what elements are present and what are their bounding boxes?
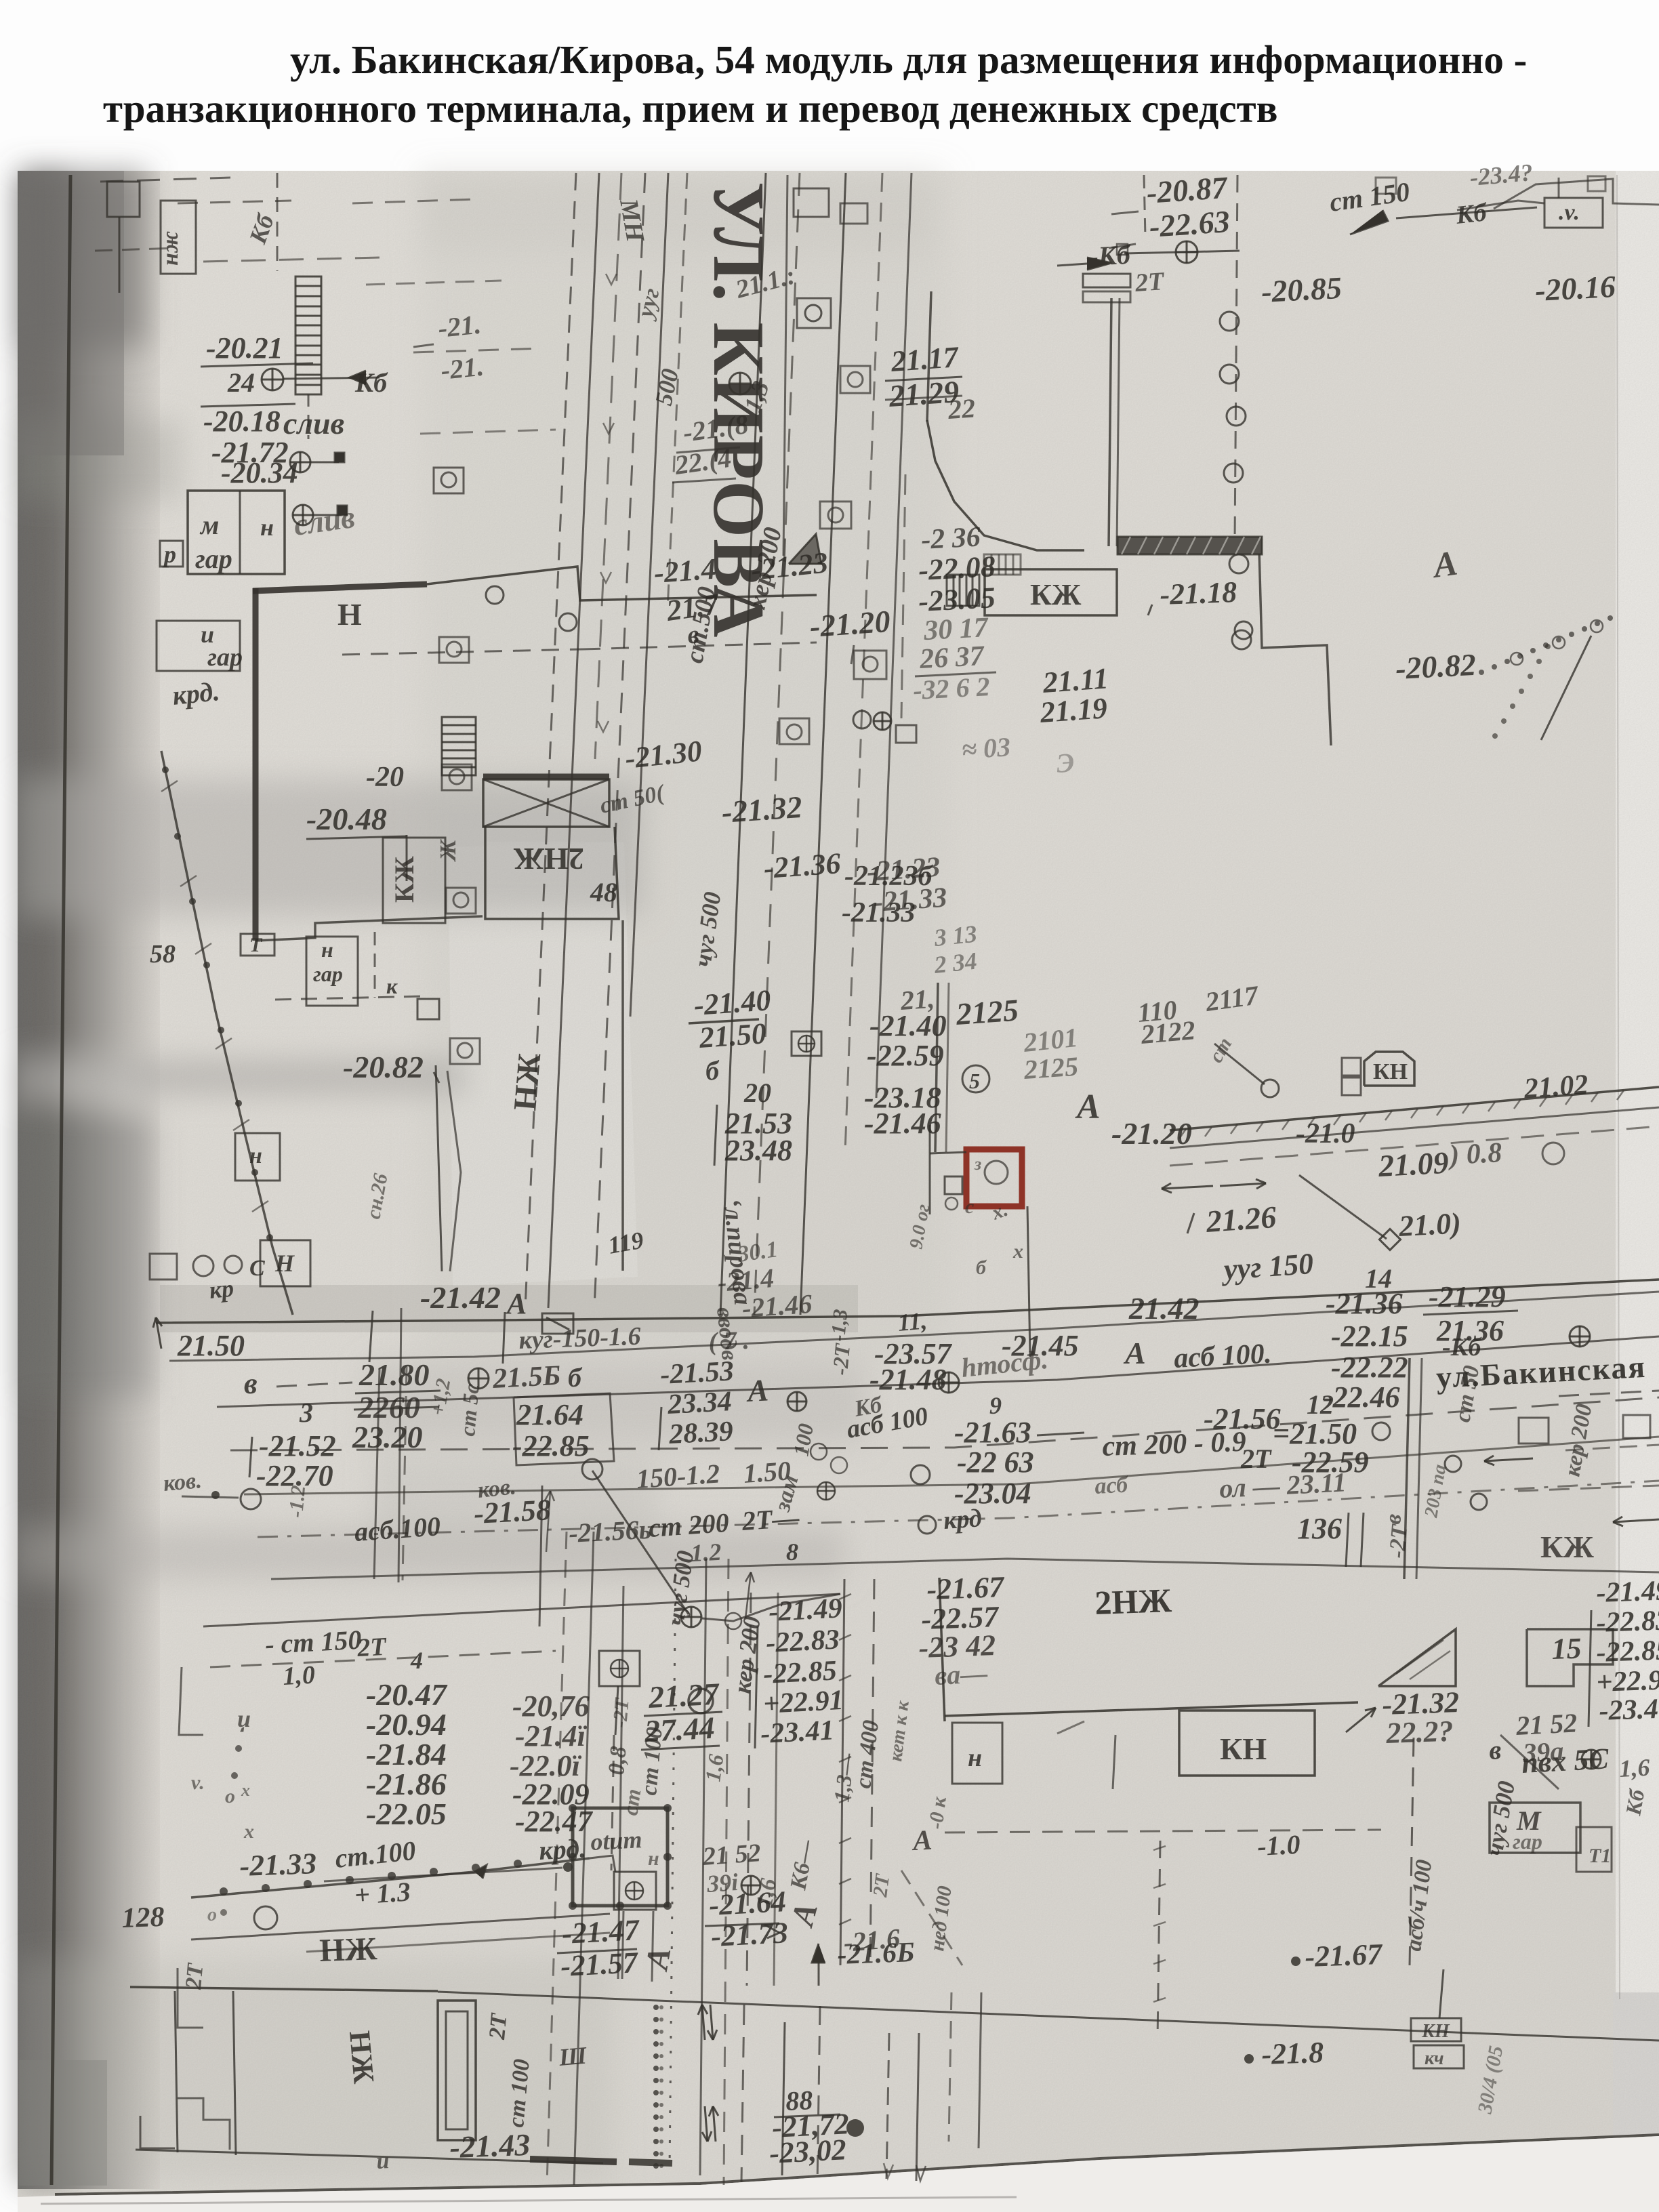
- svg-text:-21.53: -21.53: [659, 1355, 735, 1391]
- svg-text:Ж: Ж: [436, 838, 461, 862]
- svg-text:v.: v.: [191, 1771, 205, 1794]
- svg-text:8: 8: [786, 1538, 798, 1565]
- svg-text:-22.83: -22.83: [1596, 1605, 1659, 1639]
- svg-text:-0 к: -0 к: [924, 1795, 951, 1830]
- svg-text:21.50: 21.50: [177, 1329, 245, 1362]
- svg-text:21.50: 21.50: [697, 1017, 767, 1054]
- svg-text:в: в: [244, 1367, 258, 1400]
- svg-text:А: А: [745, 1372, 769, 1408]
- svg-text:-20.82: -20.82: [1395, 647, 1477, 686]
- svg-text:Н: Н: [274, 1250, 295, 1277]
- svg-text:н: н: [249, 1143, 262, 1168]
- svg-text:б: б: [976, 1256, 987, 1279]
- svg-text:2Т: 2Т: [1134, 267, 1166, 298]
- svg-text:о: о: [207, 1904, 217, 1925]
- svg-text:1,6: 1,6: [1618, 1754, 1650, 1782]
- svg-text:-21.0: -21.0: [1296, 1118, 1355, 1149]
- svg-text:кр: кр: [208, 1274, 235, 1304]
- svg-text:-20.18: -20.18: [203, 405, 281, 438]
- svg-text:15: 15: [1551, 1631, 1582, 1666]
- svg-text:крд.: крд.: [171, 676, 221, 711]
- svg-text:в: в: [1380, 1513, 1406, 1525]
- svg-text:ков.: ков.: [162, 1468, 203, 1496]
- svg-text:н: н: [321, 937, 333, 962]
- svg-text:н: н: [968, 1744, 982, 1772]
- svg-text:- ст 150: - ст 150: [264, 1624, 362, 1660]
- svg-text:асб 100.: асб 100.: [1173, 1338, 1272, 1374]
- svg-text:Э: Э: [1055, 747, 1075, 779]
- svg-text:22: 22: [946, 392, 976, 425]
- svg-text:-21.33: -21.33: [239, 1847, 317, 1883]
- svg-text:слив: слив: [283, 406, 344, 441]
- svg-text:-21.52: -21.52: [259, 1429, 336, 1462]
- svg-text:2Т: 2Т: [869, 1872, 894, 1899]
- svg-text:-21.49: -21.49: [1596, 1575, 1659, 1609]
- svg-text:-21.57: -21.57: [560, 1946, 640, 1983]
- svg-text:2 34: 2 34: [933, 947, 979, 979]
- svg-text:2125: 2125: [954, 993, 1019, 1031]
- svg-text:2125: 2125: [1022, 1051, 1079, 1086]
- svg-text:НЖ: НЖ: [319, 1931, 378, 1969]
- svg-text:39а: 39а: [1521, 1736, 1564, 1768]
- svg-text:21.17: 21.17: [889, 340, 960, 378]
- svg-text:о: о: [225, 1785, 235, 1807]
- svg-text:р: р: [162, 541, 176, 568]
- svg-text:КЖ: КЖ: [389, 856, 419, 903]
- svg-text:и: и: [375, 2148, 390, 2174]
- svg-text:А: А: [910, 1825, 933, 1858]
- svg-text:н: н: [648, 1847, 659, 1870]
- svg-text:22.2?: 22.2?: [1385, 1715, 1454, 1750]
- svg-text:-21.33: -21.33: [872, 882, 947, 918]
- svg-text:21.09: 21.09: [1377, 1145, 1450, 1183]
- svg-text:0,8: 0,8: [604, 1745, 632, 1776]
- svg-text:1,6: 1,6: [700, 1753, 728, 1783]
- svg-text:-20,76: -20,76: [512, 1689, 590, 1723]
- svg-text:5: 5: [969, 1069, 980, 1093]
- svg-text:ууг 150: ууг 150: [1219, 1247, 1314, 1286]
- svg-text:х: х: [1012, 1240, 1023, 1263]
- svg-text:1,0: 1,0: [282, 1661, 316, 1691]
- svg-text:х: х: [243, 1820, 254, 1843]
- svg-text:23.34: 23.34: [666, 1386, 733, 1420]
- svg-text:-22.46: -22.46: [1323, 1380, 1400, 1414]
- svg-text:С: С: [249, 1256, 265, 1281]
- svg-text:21.0): 21.0): [1397, 1206, 1462, 1243]
- svg-text:-21.43: -21.43: [449, 2127, 531, 2165]
- svg-text:2Т: 2Т: [356, 1633, 388, 1662]
- svg-text:21 52: 21 52: [701, 1839, 762, 1871]
- svg-text:-21.: -21.: [436, 309, 483, 344]
- svg-text:Т: Т: [249, 934, 263, 956]
- svg-text:23.48: 23.48: [724, 1134, 792, 1167]
- svg-text:-Кб: -Кб: [1442, 1333, 1482, 1361]
- svg-text:+ 1.3: + 1.3: [353, 1876, 411, 1910]
- svg-text:-22.15: -22.15: [1331, 1319, 1408, 1353]
- svg-text:-21.4ї: -21.4ї: [515, 1719, 588, 1753]
- svg-text:-21.6: -21.6: [842, 1923, 901, 1958]
- svg-text:-2Т: -2Т: [1385, 1523, 1412, 1559]
- svg-text:20: 20: [743, 1078, 771, 1108]
- svg-text:гар: гар: [207, 643, 243, 672]
- svg-text:кч: кч: [1425, 2048, 1444, 2069]
- svg-text:асб: асб: [1094, 1472, 1130, 1499]
- svg-text:2Т: 2Т: [485, 2012, 512, 2041]
- svg-text:26 37: 26 37: [918, 640, 986, 675]
- svg-text:58: 58: [150, 940, 176, 968]
- svg-text:1,6: 1,6: [752, 1877, 781, 1909]
- svg-text:-2Т: -2Т: [827, 1342, 855, 1376]
- svg-text:-21.42: -21.42: [420, 1280, 501, 1315]
- svg-text:128: 128: [121, 1902, 165, 1934]
- svg-text:-22.59: -22.59: [867, 1039, 944, 1072]
- svg-text:≈ 03: ≈ 03: [960, 731, 1011, 765]
- svg-text:-23.41: -23.41: [760, 1715, 835, 1750]
- svg-text:гар: гар: [195, 544, 232, 574]
- svg-text:24: 24: [227, 367, 255, 398]
- svg-text:-20.16: -20.16: [1534, 269, 1616, 308]
- svg-text:39і: 39і: [705, 1868, 739, 1898]
- svg-text:куг-150-1.6: куг-150-1.6: [518, 1322, 641, 1355]
- svg-text:-21.: -21.: [439, 351, 485, 386]
- svg-text:-21.20: -21.20: [1111, 1116, 1192, 1151]
- svg-text:9: 9: [989, 1392, 1002, 1419]
- svg-text:нж: нж: [158, 231, 183, 266]
- svg-text:џ: џ: [237, 1705, 251, 1732]
- svg-text:-22.05: -22.05: [366, 1797, 447, 1831]
- svg-text:КН: КН: [1373, 1059, 1408, 1084]
- svg-text:48: 48: [590, 877, 617, 907]
- svg-text:-21.48: -21.48: [869, 1363, 947, 1396]
- svg-text:-21.32: -21.32: [720, 790, 803, 829]
- svg-text:асб.100: асб.100: [353, 1511, 441, 1547]
- svg-text:-20.21: -20.21: [206, 331, 283, 365]
- svg-text:12: 12: [1307, 1389, 1334, 1420]
- svg-text:-1.0: -1.0: [1256, 1829, 1301, 1862]
- svg-text:Т1: Т1: [1589, 1845, 1611, 1867]
- svg-text:-22.22: -22.22: [1331, 1351, 1408, 1384]
- svg-text:-21.58: -21.58: [473, 1493, 552, 1530]
- svg-text:-22.63: -22.63: [1148, 204, 1231, 244]
- svg-text:21.42: 21.42: [1128, 1291, 1200, 1326]
- svg-text:НЖ: НЖ: [507, 1051, 548, 1112]
- svg-text:ст: ст: [617, 1787, 645, 1817]
- svg-text:) 0.8: ) 0.8: [1446, 1137, 1502, 1171]
- svg-text:А: А: [505, 1287, 527, 1320]
- svg-text:-21.4: -21.4: [653, 552, 717, 590]
- svg-text:-23.41: -23.41: [1599, 1693, 1659, 1727]
- svg-text:Н: Н: [337, 597, 362, 632]
- svg-text:-21.67: -21.67: [1305, 1938, 1384, 1973]
- svg-text:ст 200 - 0.9: ст 200 - 0.9: [1102, 1427, 1247, 1462]
- svg-text:-21.36: -21.36: [1326, 1287, 1403, 1320]
- svg-text:-23.4?: -23.4?: [1469, 159, 1534, 191]
- svg-text:гар: гар: [313, 962, 343, 986]
- svg-text:-21.56ь: -21.56ь: [568, 1514, 652, 1549]
- svg-text:-21.36: -21.36: [762, 846, 842, 885]
- svg-text:Ш: Ш: [557, 2041, 588, 2071]
- svg-text:х: х: [241, 1780, 250, 1800]
- svg-text:-21.23: -21.23: [865, 852, 941, 888]
- svg-text:крд: крд: [943, 1504, 983, 1535]
- svg-text:ст 5с: ст 5с: [455, 1382, 484, 1437]
- svg-text:-32 6 2: -32 6 2: [912, 671, 991, 705]
- svg-text:21.02: 21.02: [1522, 1069, 1589, 1105]
- svg-text:2Т: 2Т: [1240, 1443, 1272, 1474]
- svg-text:-21.40: -21.40: [869, 1009, 947, 1042]
- svg-text:2Т—: 2Т—: [740, 1502, 800, 1536]
- svg-text:-21.40: -21.40: [693, 983, 772, 1022]
- svg-text:150-1.2: 150-1.2: [635, 1458, 720, 1494]
- svg-text:-21.20: -21.20: [808, 604, 891, 644]
- svg-text:м: м: [199, 510, 219, 540]
- svg-text:-20.48: -20.48: [306, 802, 387, 836]
- svg-text:-23,02: -23,02: [769, 2133, 847, 2170]
- svg-text:-20: -20: [366, 762, 404, 793]
- svg-text:Кб: Кб: [354, 367, 388, 398]
- svg-text:-1.2: -1.2: [285, 1484, 310, 1518]
- svg-text:2НЖ: 2НЖ: [1094, 1581, 1172, 1622]
- svg-text:транзакционного терминала, при: транзакционного терминала, прием и перев…: [103, 86, 1277, 131]
- svg-text:21.26: 21.26: [1204, 1200, 1277, 1239]
- svg-text:4: 4: [410, 1647, 423, 1674]
- svg-text:в: в: [1488, 1734, 1502, 1765]
- svg-text:-21.8: -21.8: [1261, 2036, 1324, 2071]
- svg-text:-20.85: -20.85: [1261, 270, 1343, 309]
- svg-text:Кб: Кб: [1454, 198, 1490, 230]
- svg-text:б: б: [568, 1362, 583, 1393]
- svg-text:з: з: [974, 1154, 981, 1174]
- svg-text:2Т: 2Т: [181, 1962, 208, 1991]
- svg-text:-21.46: -21.46: [864, 1107, 941, 1140]
- svg-text:н: н: [260, 514, 274, 541]
- svg-text:-1,3: -1,3: [827, 1308, 852, 1342]
- svg-text:КЖ: КЖ: [1540, 1530, 1594, 1564]
- svg-text:КЖ: КЖ: [1030, 578, 1082, 611]
- svg-text:-21.63: -21.63: [954, 1416, 1031, 1449]
- svg-text:НЖ: НЖ: [343, 2030, 381, 2085]
- svg-text:3: 3: [299, 1397, 313, 1428]
- svg-text:3 13: 3 13: [933, 920, 979, 951]
- svg-text:ул. Бакинская/Кирова, 54 модул: ул. Бакинская/Кирова, 54 модуль для разм…: [290, 37, 1527, 82]
- svg-text:к: к: [386, 974, 398, 998]
- svg-text:КН: КН: [1220, 1732, 1267, 1766]
- svg-text:КН: КН: [1421, 2021, 1450, 2042]
- svg-text:2122: 2122: [1139, 1015, 1197, 1050]
- svg-text:с: с: [965, 1195, 974, 1218]
- svg-text:-20.82: -20.82: [343, 1050, 424, 1084]
- svg-text:вa—: вa—: [934, 1658, 988, 1691]
- svg-text:-22.85: -22.85: [512, 1429, 590, 1462]
- svg-text:-21.18: -21.18: [1160, 575, 1237, 611]
- svg-text:-21.29: -21.29: [1429, 1280, 1506, 1313]
- svg-text:28.39: 28.39: [668, 1416, 734, 1450]
- svg-text:-21.47: -21.47: [561, 1913, 641, 1950]
- svg-text:А: А: [1123, 1336, 1146, 1370]
- svg-text:гар: гар: [1513, 1829, 1542, 1853]
- svg-text:крд.: крд.: [538, 1832, 587, 1866]
- svg-text:2НЖ: 2НЖ: [513, 842, 584, 876]
- svg-text:11,: 11,: [897, 1307, 928, 1336]
- svg-text:21.80: 21.80: [359, 1357, 430, 1392]
- svg-text:-22.85: -22.85: [1596, 1635, 1659, 1668]
- svg-text:21.5Б: 21.5Б: [491, 1360, 561, 1395]
- svg-text:-22 63: -22 63: [957, 1446, 1034, 1479]
- svg-text:136: 136: [1297, 1512, 1342, 1545]
- svg-text:-21.49: -21.49: [768, 1593, 843, 1628]
- svg-text:А: А: [1075, 1088, 1101, 1126]
- svg-text:оtum: оtum: [590, 1826, 642, 1856]
- svg-text:21.64: 21.64: [516, 1398, 583, 1431]
- svg-text:-20.34: -20.34: [221, 456, 298, 489]
- svg-text:21.19: 21.19: [1038, 691, 1108, 729]
- svg-text:.v.: .v.: [1559, 200, 1580, 225]
- svg-text:23.20: 23.20: [352, 1420, 423, 1454]
